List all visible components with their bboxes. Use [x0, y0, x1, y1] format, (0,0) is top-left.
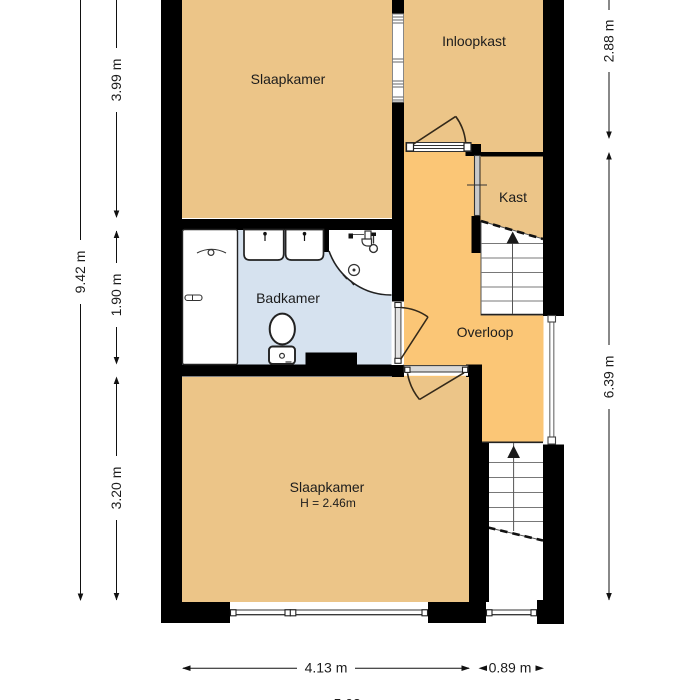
- svg-text:3.99 m: 3.99 m: [108, 59, 124, 102]
- svg-text:H = 2.46m: H = 2.46m: [300, 496, 356, 510]
- svg-text:1.90 m: 1.90 m: [108, 274, 124, 317]
- svg-text:Inloopkast: Inloopkast: [442, 33, 506, 49]
- svg-text:4.13 m: 4.13 m: [305, 660, 348, 676]
- svg-text:Kast: Kast: [499, 189, 527, 205]
- svg-text:3.20 m: 3.20 m: [108, 467, 124, 510]
- svg-text:6.39 m: 6.39 m: [601, 356, 617, 399]
- svg-text:5.02 m: 5.02 m: [334, 696, 377, 700]
- svg-text:Overloop: Overloop: [457, 324, 514, 340]
- svg-text:9.42 m: 9.42 m: [72, 251, 88, 294]
- svg-text:Slaapkamer: Slaapkamer: [290, 479, 365, 495]
- svg-text:Slaapkamer: Slaapkamer: [251, 71, 326, 87]
- svg-text:2.88 m: 2.88 m: [601, 20, 617, 63]
- svg-text:0.89 m: 0.89 m: [489, 660, 532, 676]
- svg-text:Badkamer: Badkamer: [256, 290, 320, 306]
